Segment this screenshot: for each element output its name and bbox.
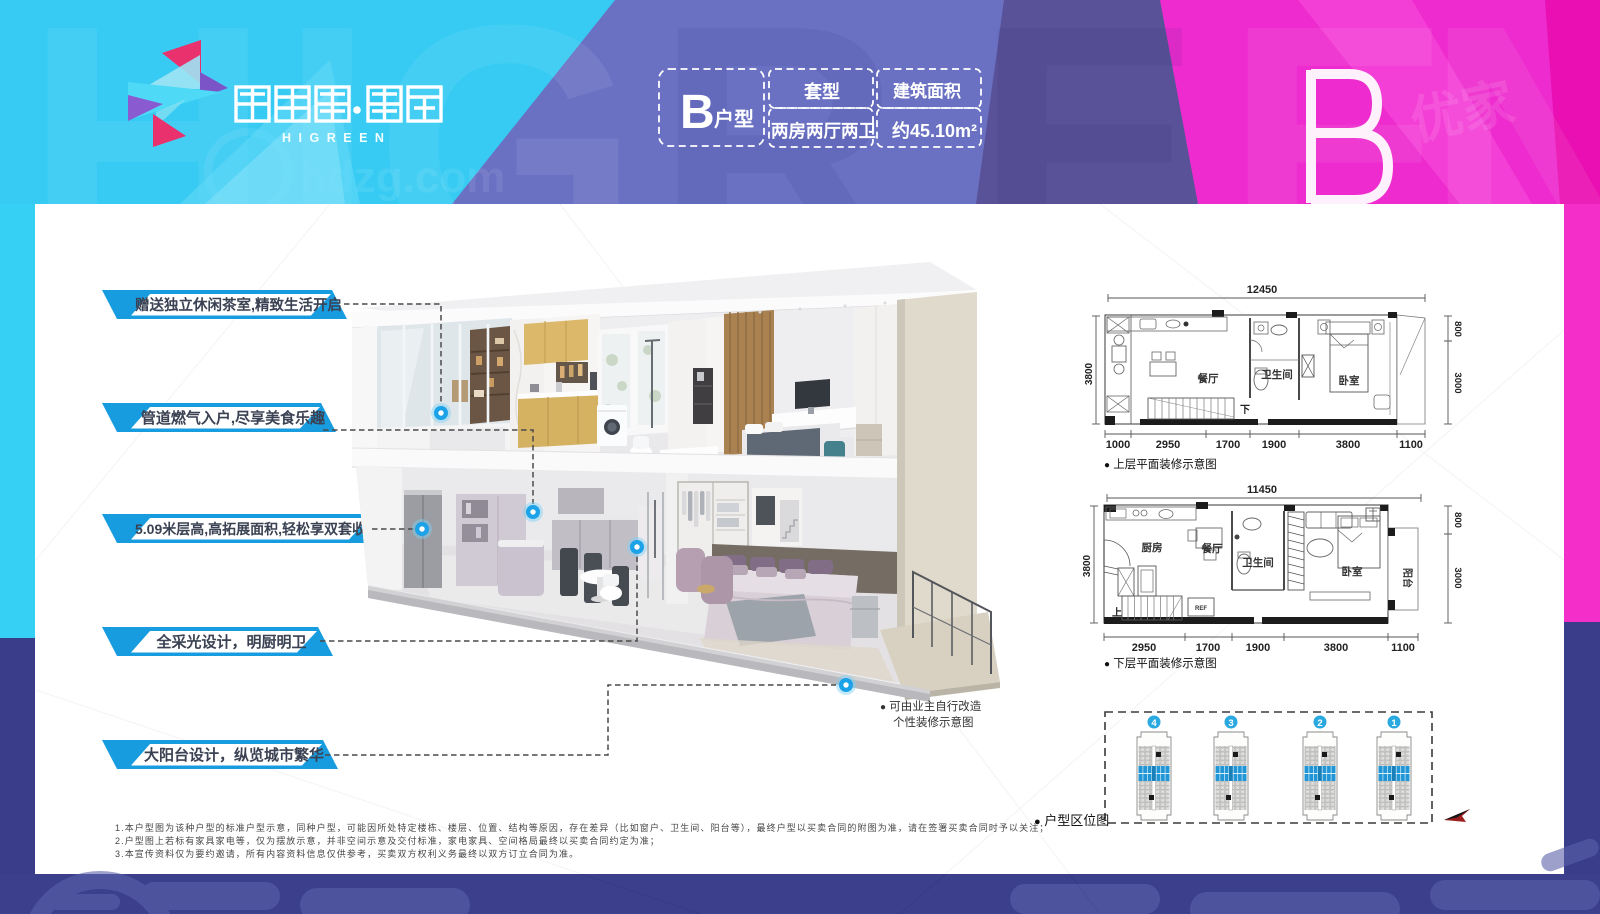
svg-text:卧室: 卧室 [1339,374,1361,387]
svg-text:赠送独立休闲茶室,精致生活开启: 赠送独立休闲茶室,精致生活开启 [135,296,342,314]
svg-text:800: 800 [1452,512,1463,528]
svg-text:3: 3 [1228,718,1233,729]
svg-text:800: 800 [1452,321,1463,337]
svg-text:厨房: 厨房 [1142,541,1163,554]
svg-text:HIGREEN: HIGREEN [282,131,391,145]
svg-text:管道燃气入户,尽享美食乐趣: 管道燃气入户,尽享美食乐趣 [141,409,326,427]
svg-text:卫生间: 卫生间 [1261,368,1293,381]
svg-text:1100: 1100 [1399,439,1423,451]
svg-text:E: E [975,0,1202,335]
svg-text:● 可由业主自行改造: ● 可由业主自行改造 [880,699,982,713]
svg-text:1700: 1700 [1196,642,1220,654]
svg-text:1000: 1000 [1106,439,1130,451]
svg-text:5.09米层高,高拓展面积,轻松享双套收益: 5.09米层高,高拓展面积,轻松享双套收益 [135,521,380,537]
svg-text:1900: 1900 [1262,439,1286,451]
svg-text:3000: 3000 [1452,567,1463,588]
svg-text:1900: 1900 [1246,642,1270,654]
svg-text:餐厅: 餐厅 [1201,542,1224,555]
svg-text:户型: 户型 [714,107,754,131]
svg-text:1.本户型图为该种户型的标准户型示意，同种户型，可能因所处特: 1.本户型图为该种户型的标准户型示意，同种户型，可能因所处特定楼栋、楼层、位置、… [115,822,1049,833]
svg-text:下: 下 [1240,404,1250,416]
svg-text:2: 2 [1317,718,1322,729]
svg-text:全采光设计，明厨明卫: 全采光设计，明厨明卫 [155,633,306,651]
svg-text:个性装修示意图: 个性装修示意图 [893,715,974,729]
svg-text:套型: 套型 [804,81,840,102]
svg-text:2.户型图上若标有家具家电等，仅为摆放示意，并非空间示意及交: 2.户型图上若标有家具家电等，仅为摆放示意，并非空间示意及交付标准，家电家具、空… [115,835,660,846]
svg-text:● 下层平面装修示意图: ● 下层平面装修示意图 [1104,656,1217,670]
svg-text:3800: 3800 [1324,642,1348,654]
svg-text:2950: 2950 [1156,439,1180,451]
svg-text:2950: 2950 [1132,642,1156,654]
svg-text:上: 上 [1112,606,1122,619]
svg-text:阳台: 阳台 [1401,568,1414,588]
svg-text:3.本宣传资料仅为要约邀请，所有内容资料信息仅供参考，买卖双: 3.本宣传资料仅为要约邀请，所有内容资料信息仅供参考，买卖双方权利义务最终以双方… [115,848,579,859]
svg-text:约45.10m²: 约45.10m² [892,120,977,141]
svg-text:11450: 11450 [1247,484,1277,496]
svg-text:B: B [680,86,715,139]
svg-text:3800: 3800 [1082,554,1093,577]
svg-text:12450: 12450 [1247,284,1278,296]
svg-text:卧室: 卧室 [1342,565,1364,578]
svg-text:卫生间: 卫生间 [1242,556,1274,569]
svg-text:1100: 1100 [1391,642,1415,654]
svg-text:REF: REF [1195,606,1207,612]
svg-text:● 上层平面装修示意图: ● 上层平面装修示意图 [1104,457,1217,471]
svg-text:大阳台设计，纵览城市繁华: 大阳台设计，纵览城市繁华 [144,746,324,764]
svg-text:3800: 3800 [1084,362,1095,385]
svg-text:1700: 1700 [1216,439,1240,451]
svg-text:餐厅: 餐厅 [1197,372,1220,385]
svg-text:3800: 3800 [1336,439,1360,451]
svg-text:两房两厅两卫: 两房两厅两卫 [771,121,876,141]
svg-text:4: 4 [1151,718,1157,729]
svg-text:1: 1 [1391,718,1397,729]
svg-text:建筑面积: 建筑面积 [893,81,961,101]
svg-text:3000: 3000 [1452,372,1463,393]
